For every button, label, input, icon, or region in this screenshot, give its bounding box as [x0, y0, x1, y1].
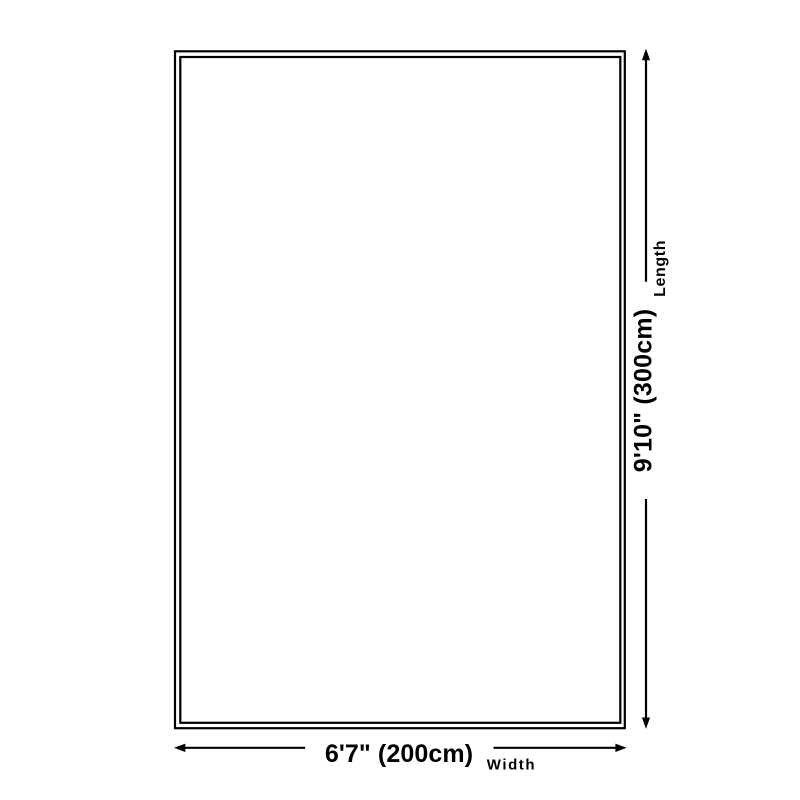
svg-text:Length: Length — [652, 240, 669, 297]
svg-text:9'10" (300cm): 9'10" (300cm) — [630, 309, 658, 473]
svg-text:6'7" (200cm): 6'7" (200cm) — [325, 740, 473, 768]
svg-text:Width: Width — [487, 756, 536, 773]
